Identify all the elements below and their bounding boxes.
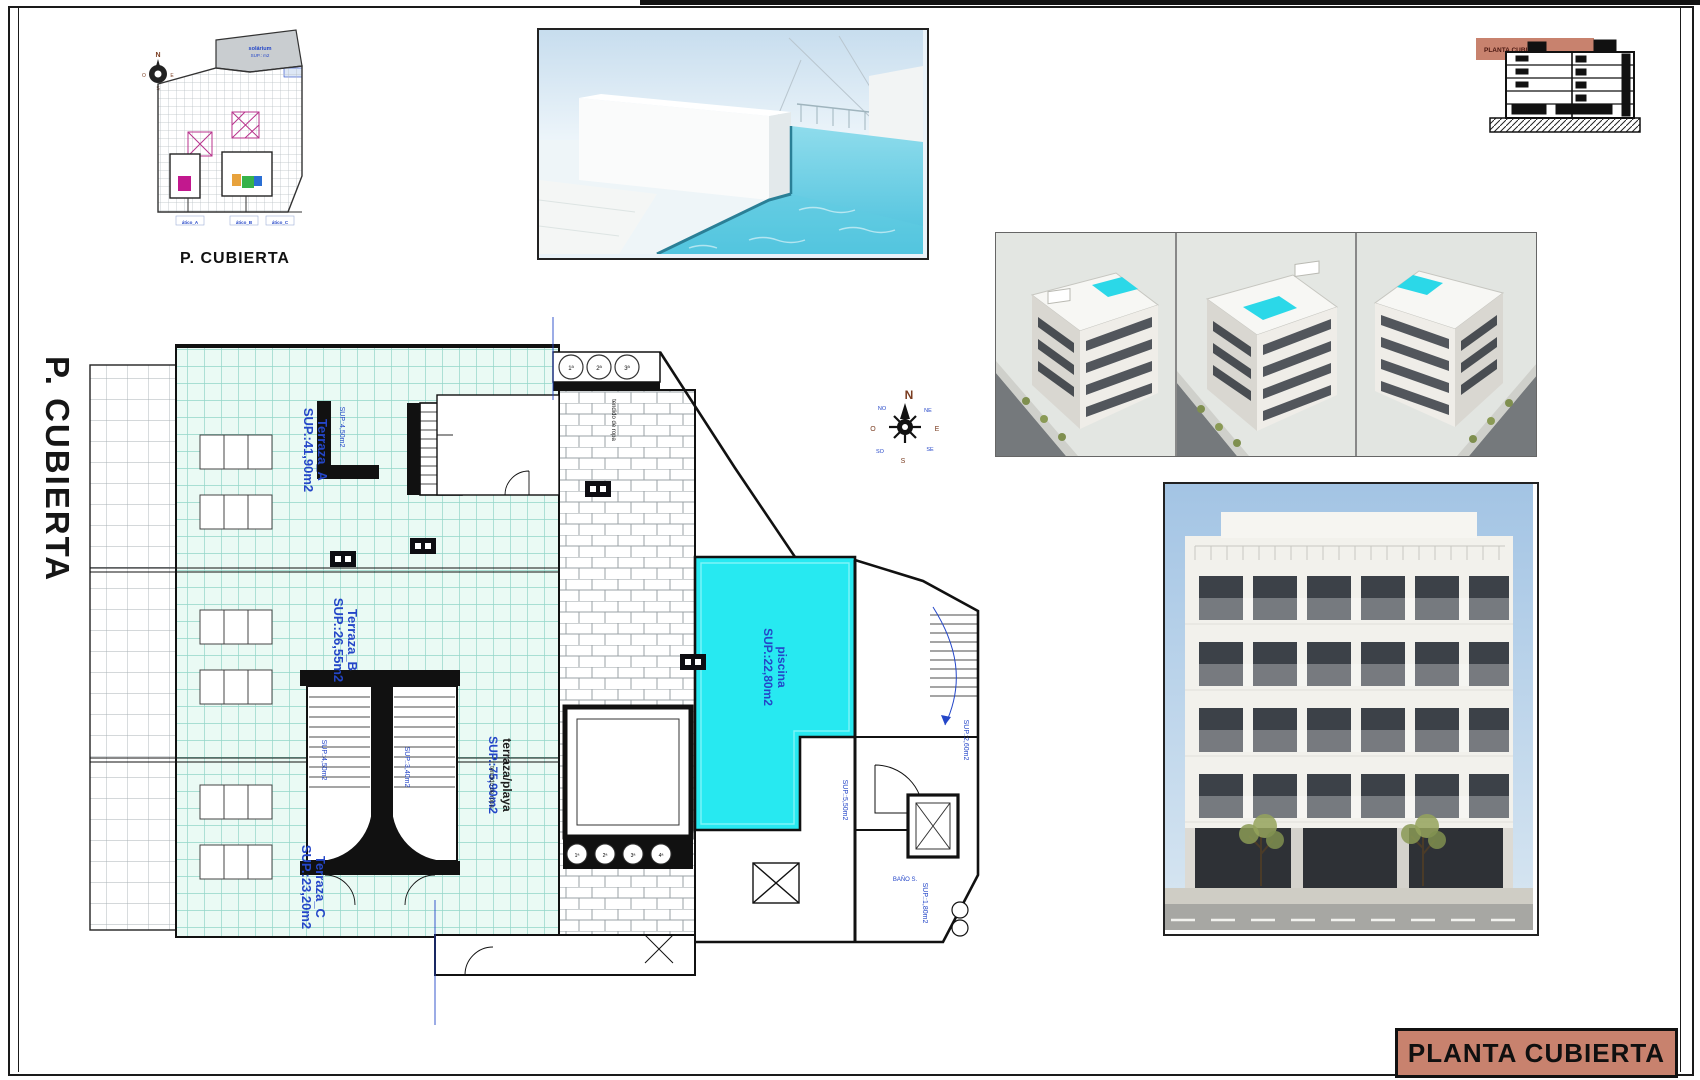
label-tendido-2: tendido de ropa [610,399,616,441]
site-plan-thumbnail: N O E S solárium SUP.: m2 [128,26,328,252]
skylight-label: 3ª [624,365,630,372]
label-terraza-a: Terraza_A [315,419,330,482]
site-plan-caption: P. CUBIERTA [150,250,320,268]
sheet-side-title: P. CUBIERTA [38,356,76,582]
lower-roof-band [90,365,176,930]
aerial-render-1 [996,233,1175,456]
label-terraza-a-sup: SUP.:41,90m2 [301,408,316,492]
compass-s: S [901,458,906,465]
compass-e: E [935,426,940,433]
vent-label: 3ª [631,853,636,859]
facade-render-image [1163,482,1539,936]
shower-box [753,863,799,903]
compass-icon: N E S O NE NO SE SO [870,388,939,465]
skylight-strip: 1ª 2ª 3ª [553,352,660,391]
skylight-label: 2ª [596,365,602,372]
compass-no: NO [878,406,887,412]
pool-render-image [537,28,929,260]
compass-so: SO [876,449,885,455]
site-tag: ático_C [272,220,289,225]
compass-o: O [870,426,876,433]
label-sup-stair-top: SUP.:4,50m2 [338,407,345,448]
vent-label: 1ª [575,853,580,859]
machine-room [565,707,691,837]
title-block: PLANTA CUBIERTA [1395,1028,1678,1078]
site-area-sup: SUP.: m2 [251,53,270,58]
site-area-label: solárium [249,46,272,52]
compass-n: N [905,388,914,402]
svg-text:N: N [155,52,160,59]
frame-line-left [18,6,19,1072]
roof-floor-plan: 1ª 2ª 3ª [85,315,985,1030]
skylight-label: 1ª [568,365,574,372]
site-tag: ático_A [182,220,199,225]
label-terraza-c-sup: SUP.:23,20m2 [299,845,314,929]
svg-text:O: O [142,73,146,79]
section-thumbnail: PLANTA CUBIERTA [1476,30,1648,140]
label-tendido-1: tendido de ropa [488,766,494,808]
label-sup-right-2: SUP.:5,50m2 [841,780,848,821]
label-terraza-c: Terraza_C [313,856,328,919]
label-piscina: piscina [775,646,789,688]
label-terraza-playa: terraza/playa [500,738,514,812]
label-sup-core-left: SUP.:4,50m2 [320,740,327,781]
aerial-renders-strip [995,232,1537,457]
vent-label: 2ª [603,853,608,859]
label-bath: BAÑO S. [893,876,918,883]
vent-label: 4ª [659,853,664,859]
svg-text:E: E [170,73,174,79]
label-sup-right-1: SUP.:2,60m2 [962,720,969,761]
drawing-sheet: N O E S solárium SUP.: m2 [0,0,1700,1080]
aerial-render-2 [1177,233,1356,456]
label-terraza-b: Terraza_B [345,609,360,671]
vent-row: 1ª 2ª 3ª 4ª [563,839,693,869]
compass-se: SE [926,447,934,453]
aerial-render-3 [1357,233,1536,456]
label-sup-core-right: SUP.:3,40m2 [403,747,410,788]
right-service-rooms [855,560,978,942]
label-terraza-b-sup: SUP.:26,55m2 [331,598,346,682]
frame-line-right [1680,6,1681,1072]
top-edge-bar [640,0,1700,5]
compass-ne: NE [924,408,932,414]
label-sup-bath: SUP.:1,80m2 [921,883,928,924]
site-tag: ático_B [236,220,253,225]
upper-room [437,395,559,495]
label-piscina-sup: SUP.:22,80m2 [761,628,775,706]
